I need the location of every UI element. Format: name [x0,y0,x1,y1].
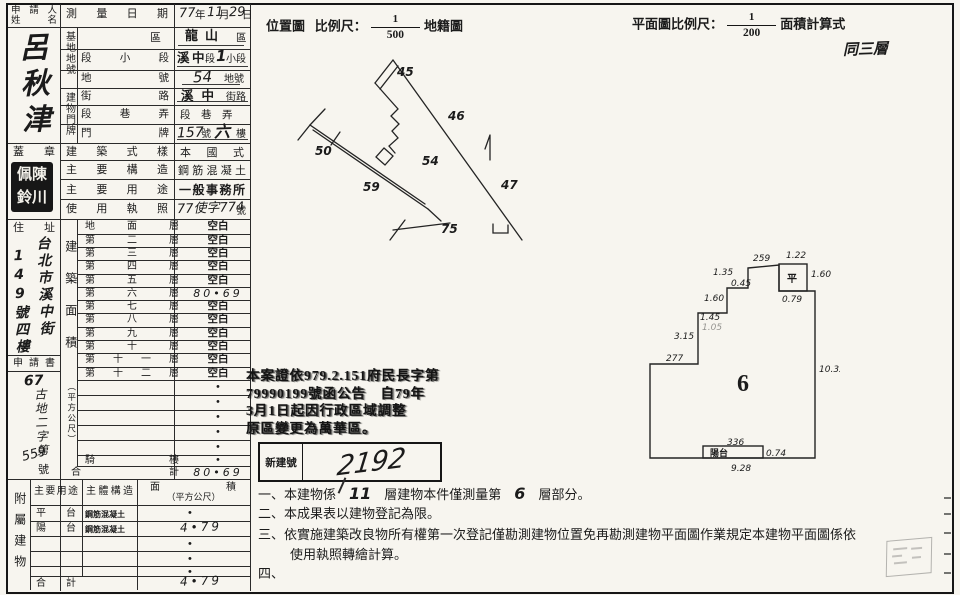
table-line [60,4,61,591]
floor-label [78,396,186,409]
use-label: 主要用途 [66,184,168,197]
new-building-no-box: 新建號 2192 [258,442,442,482]
table-line [30,536,250,537]
license-label: 使用執照 [66,203,168,216]
annex-group-label: 附屬建物 [12,492,26,576]
map-section-header: 位置圖 比例尺：1500地籍圖 [266,12,463,44]
floor-row-9: 第九層空白 [78,327,250,340]
dim-079: 0.79 [782,295,802,305]
parcel-54: 54 [422,154,439,168]
map-scale-fraction: 1500 [371,12,420,44]
use-value: 一般事務所 [179,184,247,198]
annex-header-structure: 主體構造 [86,486,133,498]
floor-label-arcade: 騎樓 [78,455,186,466]
fraction-denominator: 500 [371,28,420,44]
fraction-numerator: 1 [727,10,776,26]
dim-160-right: 1.60 [811,270,831,280]
note-1-text-a: 一、本建物係 [258,487,336,502]
address-label: 住 址 [13,222,55,235]
annex-row-area: • [188,553,192,566]
scanned-building-survey-document: { "applicant": { "label_line1": "申請人", "… [0,0,960,595]
note-1-text-b: 層建物本件僅測量第 [384,487,501,502]
style-label: 建築式樣 [66,146,168,159]
annex-total-value: 4•79 [180,574,222,589]
floor-label: 第七層 [78,300,186,313]
floor-row-8: 第八層空白 [78,313,250,326]
structure-value: 鋼筋混凝土 [178,165,246,178]
district-row-label: 區 [150,32,161,45]
floor-area-group-label: 建築面積 [63,240,77,368]
binding-mark [944,572,951,574]
district-change-stamp: 本案證依979.2.151府民長字第 79990199號函公告 自79年 3月1… [246,367,461,437]
floor-value: 空白 [186,313,250,326]
plan-scale-title: 平面圖比例尺： [632,17,723,32]
site-group-label: 基地地號 [63,31,75,75]
structure-label: 主要構造 [66,164,168,177]
note-1-text-c: 層部分。 [538,487,590,502]
annex-row-area: • [188,538,192,551]
annex-row-area: • [188,507,192,520]
map-scale-label: 比例尺： [315,19,367,34]
table-line [8,143,250,144]
parcel-numbers: 45 46 50 54 59 47 75 [315,65,518,236]
parcel-50: 50 [315,144,332,158]
floor-row-blank: • [78,411,250,424]
floor-value-area: 80•69 [186,287,250,300]
floor-label [78,441,186,454]
floor-row-10: 第十層空白 [78,340,250,353]
door-row-label: 門牌 [81,128,169,140]
floor-label: 第六層 [78,287,186,300]
floor-label: 第五層 [78,274,186,287]
plan-section-header: 平面圖比例尺：1200面積計算式 [632,10,845,42]
lot-value: 54 [193,69,213,87]
table-line [30,479,31,590]
section-value-2: 中 [192,51,205,65]
binding-mark [944,532,951,534]
note-1: 一、本建物係11層建物本件僅測量第6層部分。 [258,485,590,503]
location-map-sketch: 45 46 50 54 59 47 75 [285,52,535,242]
floor-label [78,426,186,439]
door-group-label: 建物門牌 [63,92,75,136]
application-no-suffix: 號 [38,464,49,477]
annex-row-structure: 鋼筋混凝土 [85,525,125,534]
floor-label [78,411,186,424]
floor-label: 地面層 [78,220,186,233]
annex-row-use: 陽台 [36,523,76,535]
floor-value: • [186,396,250,409]
floor-value: • [186,426,250,439]
floor-label: 第十層 [78,340,186,353]
dim-145: 1.45 [700,313,720,323]
new-building-no-label: 新建號 [260,444,303,480]
stamp-line: 原區變更為萬華區。 [246,420,461,438]
table-line [8,371,60,372]
floor-value: 空白 [186,274,250,287]
floor-row-6: 第六層80•69 [78,287,250,300]
value-underline [178,45,244,46]
unit-month: 月 [219,10,230,22]
parcel-45: 45 [396,65,414,79]
floor-label: 第二層 [78,234,186,247]
lane-row-label: 段巷弄 [81,109,169,121]
stamp-line: 本案證依979.2.151府民長字第 [246,367,461,385]
dim-277: 277 [666,354,683,364]
note-1-floors-total: 11 [349,484,371,503]
floor-value: • [186,441,250,454]
annex-row-structure: 鋼筋混凝土 [85,510,125,519]
table-line [60,70,250,71]
floor-row-4: 第四層空白 [78,260,250,273]
plan-dimensions: 259 1.22 1.60 0.79 1.35 0.45 1.60 1.45 1… [666,251,840,474]
floor-row-11: 第十一層空白 [78,353,250,366]
table-line [250,4,251,591]
annex-header-use: 主要用途 [34,486,78,498]
seal-characters: 佩陳鈴川 [14,164,50,210]
district-unit: 區 [236,33,247,45]
faint-stamp-mark [886,537,932,577]
floor-row-blank: • [78,381,250,394]
floor-row-ground: 地面層空白 [78,220,250,233]
floor-row-7: 第七層空白 [78,300,250,313]
floor-value: 空白 [186,367,250,380]
dim-1033: 10.33 [819,365,840,375]
floor-value: • [186,455,250,466]
dim-928: 9.28 [731,464,751,474]
applicant-label-line2: 姓 名 [11,16,57,27]
floor-value: 空白 [186,353,250,366]
value-underline [177,66,248,67]
dim-074: 0.74 [766,449,786,459]
table-line [60,179,250,180]
table-line [82,479,83,576]
floor-row-3: 第三層空白 [78,247,250,260]
floor-value: 空白 [186,300,250,313]
floor-value: • [186,381,250,394]
unit-day: 日 [242,10,253,22]
applicant-name-handwritten: 呂秋津 [14,31,51,140]
annex-row-use: 平台 [36,508,76,520]
lane-value: 段 巷 弄 [180,110,233,122]
floor-label: 第十二層 [78,367,186,380]
parcel-47: 47 [500,178,518,192]
table-line [8,479,250,480]
floor-total-label: 合計 [64,467,186,479]
street-unit: 街路 [226,92,246,104]
floor-row-blank: • [78,441,250,454]
fraction-numerator: 1 [371,12,420,28]
dim-top: 259 [753,254,770,264]
fraction-denominator: 200 [727,26,776,42]
new-building-no-value: 2192 [335,442,407,482]
plan-hand-note: 同三層 [843,40,889,59]
parcel-75: 75 [441,222,458,236]
annex-header-area-paren: （平方公尺） [139,492,248,502]
section-unit-1: 段 [205,54,215,66]
table-line [30,505,250,506]
floor-row-12: 第十二層空白 [78,367,250,380]
license-value: 77使字774 [177,201,245,218]
survey-date-label: 測量日期 [66,8,168,21]
binding-mark [944,497,951,499]
table-line [30,551,250,552]
note-1-floor-measured: 6 [514,484,525,503]
lot-unit: 地號 [224,74,244,86]
unit-year: 年 [195,10,206,22]
table-line [77,27,78,143]
balcony-label: 陽台 [710,447,728,458]
floor-row-total: 合計80•69 [64,467,250,479]
floor-total-value: 80•69 [186,467,250,479]
style-value: 本國式 [180,147,244,160]
dim-160-left: 1.60 [704,294,724,304]
binding-mark [944,513,951,515]
floor-number-label: 6 [737,371,749,397]
binding-mark [944,553,951,555]
floor-label: 第九層 [78,327,186,340]
floor-row-blank: • [78,426,250,439]
survey-date-year: 77 [179,7,196,23]
floor-value: 空白 [186,220,250,233]
street-row-label: 街路 [81,91,169,103]
table-line [137,479,138,590]
stamp-line: 3月1日起因行政區域調整 [246,402,461,420]
floor-row-blank: • [78,396,250,409]
section-row-label: 段小段 [81,53,169,65]
table-line [60,105,250,106]
door-floor: 六 [214,123,231,142]
floor-row-5: 第五層空白 [78,274,250,287]
door-unit-2: 樓 [236,129,246,141]
note-4: 四、 [258,567,284,582]
note-3-continued: 使用執照轉繪計算。 [290,548,407,563]
dim-135: 1.35 [713,268,733,278]
note-3: 三、依實施建築改良物所有權第一次登記僅勘測建物位置免再勘測建物平面圖作業規定本建… [258,528,856,543]
application-label: 申請書 [13,358,55,370]
door-number: 157 [177,125,204,142]
floor-value: 空白 [186,327,250,340]
floor-label [78,381,186,394]
annex-total-label: 合計 [36,578,76,590]
floor-plan-sketch: 259 1.22 1.60 0.79 1.35 0.45 1.60 1.45 1… [640,245,840,480]
table-line [30,566,250,567]
seal-label: 蓋 章 [13,146,55,159]
section-unit-2: 小段 [226,54,246,66]
floor-row-2: 第二層空白 [78,234,250,247]
applicant-seal-stamp: 佩陳鈴川 [11,162,53,212]
note-2: 二、本成果表以建物登記為限。 [258,507,440,522]
floor-value: 空白 [186,260,250,273]
parcel-46: 46 [447,109,465,123]
application-no-prefix: 67 [24,373,44,390]
floor-area-group-paren: （平方公尺） [66,382,76,445]
map-suffix: 地籍圖 [424,19,463,34]
dim-336: 336 [727,438,744,448]
district-value: 龍山 [185,29,225,44]
annex-row-area: 4•79 [180,520,222,535]
floor-value: • [186,411,250,424]
dim-315: 3.15 [674,332,694,342]
floor-row-arcade: 騎樓• [78,455,250,466]
floor-label: 第四層 [78,260,186,273]
lot-row-label: 地號 [81,73,169,85]
platform-label: 平 [787,273,797,285]
floor-label: 第十一層 [78,353,186,366]
street-value: 溪中 [181,89,222,103]
section-value-1: 溪 [177,51,190,65]
plan-scale-fraction: 1200 [727,10,776,42]
floor-value: 空白 [186,340,250,353]
door-unit-1: 號 [201,129,211,141]
table-line [60,160,250,161]
map-title: 位置圖 [266,19,305,34]
floor-label: 第八層 [78,313,186,326]
floor-value: 空白 [186,247,250,260]
floor-value: 空白 [186,234,250,247]
dim-122: 1.22 [786,251,806,261]
floor-label: 第三層 [78,247,186,260]
parcel-59: 59 [363,180,380,194]
plan-suffix: 面積計算式 [780,17,845,32]
dim-105: 1.05 [702,323,722,333]
license-unit: 號 [236,206,246,218]
stamp-line: 79990199號函公告 自79年 [246,385,461,403]
dim-045: 0.45 [731,279,751,289]
new-building-no-value-cell: 2192 [303,444,440,480]
